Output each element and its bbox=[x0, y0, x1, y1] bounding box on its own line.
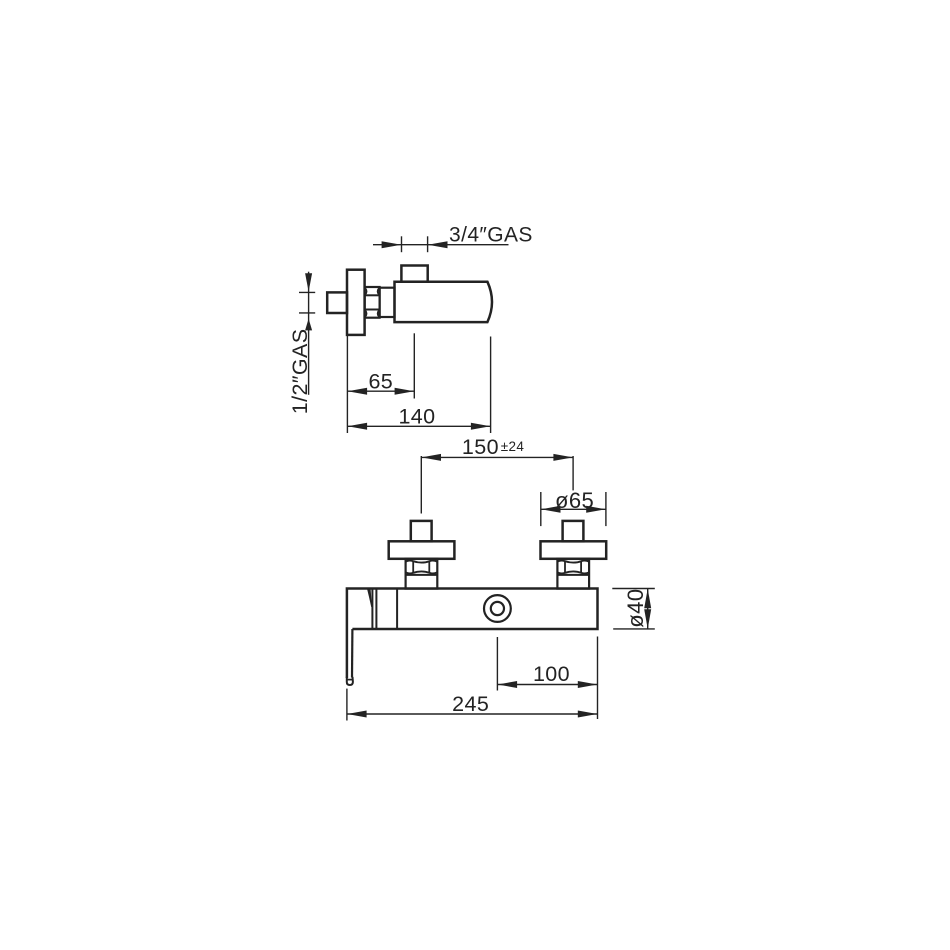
svg-text:±24: ±24 bbox=[501, 439, 525, 454]
svg-text:100: 100 bbox=[533, 662, 570, 686]
svg-text:ø40: ø40 bbox=[623, 588, 648, 627]
svg-text:1/2″GAS: 1/2″GAS bbox=[288, 328, 312, 414]
svg-text:3/4″GAS: 3/4″GAS bbox=[449, 224, 533, 247]
svg-text:ø65: ø65 bbox=[555, 488, 594, 513]
svg-text:65: 65 bbox=[368, 369, 393, 393]
svg-text:245: 245 bbox=[452, 692, 489, 716]
svg-text:140: 140 bbox=[398, 404, 435, 428]
svg-text:150: 150 bbox=[462, 435, 499, 459]
